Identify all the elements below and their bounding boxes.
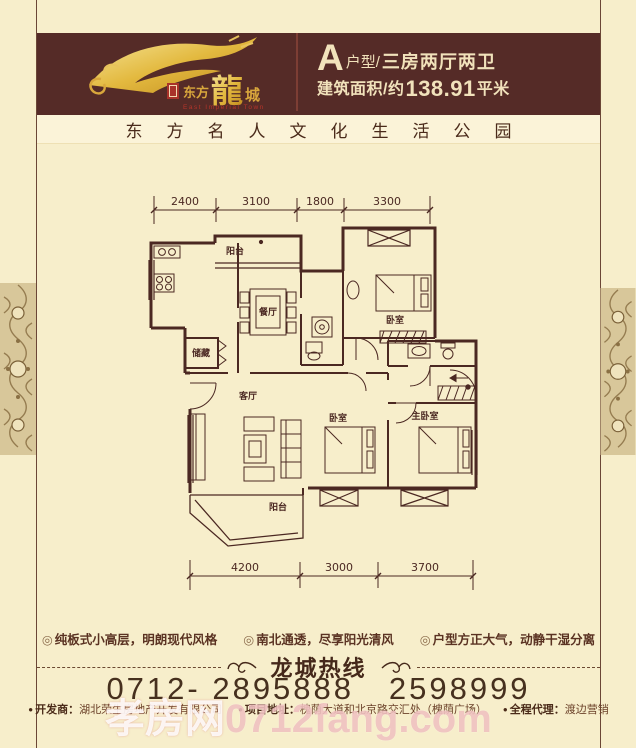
dot-bullet-icon: ● bbox=[238, 705, 243, 714]
dim-top-4: 3300 bbox=[373, 195, 401, 208]
footer-value: 渡边营销 bbox=[565, 701, 609, 717]
floor-plan: 2400 3100 1800 3300 4200 3000 3700 bbox=[138, 190, 522, 623]
hotline-dash-left bbox=[37, 667, 221, 668]
ornament-carving-right-icon bbox=[600, 288, 636, 455]
unit-letter: A bbox=[317, 42, 344, 73]
feature-list: ◎纯板式小高层，明朗现代风格 ◎南北通透，尽享阳光清风 ◎户型方正大气，动静干湿… bbox=[37, 629, 600, 648]
flyer-page: 东方 龍 城 East Imperial Town A 户型/ 三房两厅两卫 建… bbox=[0, 0, 636, 748]
room-label-living: 客厅 bbox=[238, 390, 257, 402]
footer-label: 项目地址： bbox=[245, 701, 300, 717]
room-labels: 阳台 餐厅 卧室 储藏 客厅 阳台 卧室 主卧室 bbox=[192, 245, 439, 513]
dragon-logo-icon: 东方 龍 城 East Imperial Town bbox=[79, 33, 319, 113]
unit-suffix: 户型/ bbox=[346, 54, 380, 71]
room-label-balcony-top: 阳台 bbox=[226, 245, 244, 257]
footer-value: 槐荫大道和北京路交汇处（槐荫广场） bbox=[300, 701, 487, 717]
dim-top-3: 1800 bbox=[306, 195, 334, 208]
dim-top-1: 2400 bbox=[171, 195, 199, 208]
dot-bullet-icon: ● bbox=[503, 705, 508, 714]
footer-info-bar: ●开发商：湖北荣生房地产开发有限公司 ●项目地址：槐荫大道和北京路交汇处（槐荫广… bbox=[37, 701, 600, 717]
footer-label: 全程代理： bbox=[510, 701, 565, 717]
room-label-dining: 餐厅 bbox=[258, 306, 277, 318]
dimension-labels: 2400 3100 1800 3300 4200 3000 3700 bbox=[171, 195, 439, 574]
footer-item-developer: ●开发商：湖北荣生房地产开发有限公司 bbox=[28, 701, 222, 717]
hotline-dash-right bbox=[417, 667, 601, 668]
unit-type-line: A 户型/ 三房两厅两卫 bbox=[317, 42, 510, 73]
furniture bbox=[154, 240, 471, 481]
room-label-bedroom-middle: 卧室 bbox=[329, 412, 347, 424]
area-value: 138.91 bbox=[405, 79, 475, 99]
room-label-balcony-bottom: 阳台 bbox=[269, 501, 287, 513]
header-divider bbox=[296, 33, 298, 111]
feature-text: 户型方正大气，动静干湿分离 bbox=[433, 633, 596, 647]
ring-bullet-icon: ◎ bbox=[420, 633, 431, 647]
tagline-text: 东方名人文化生活公园 bbox=[102, 117, 536, 142]
unit-area-line: 建筑面积/约 138.91 平米 bbox=[317, 79, 510, 99]
dim-bottom-1: 4200 bbox=[231, 561, 259, 574]
unit-info: A 户型/ 三房两厅两卫 建筑面积/约 138.91 平米 bbox=[317, 42, 510, 99]
tagline-band: 东方名人文化生活公园 bbox=[37, 115, 600, 144]
area-prefix: 建筑面积/约 bbox=[317, 81, 404, 99]
logo-en: East Imperial Town bbox=[183, 104, 265, 111]
feature-text: 南北通透，尽享阳光清风 bbox=[256, 633, 394, 647]
area-suffix: 平米 bbox=[477, 81, 510, 99]
logo-name-post: 城 bbox=[245, 86, 260, 104]
outer-walls bbox=[151, 228, 476, 493]
ring-bullet-icon: ◎ bbox=[42, 633, 53, 647]
logo-name-pre: 东方 bbox=[183, 85, 209, 100]
feature-text: 纯板式小高层，明朗现代风格 bbox=[55, 633, 218, 647]
footer-value: 湖北荣生房地产开发有限公司 bbox=[79, 701, 222, 717]
feature-item: ◎户型方正大气，动静干湿分离 bbox=[420, 629, 595, 648]
room-label-master-bedroom: 主卧室 bbox=[411, 410, 438, 422]
feature-item: ◎纯板式小高层，明朗现代风格 bbox=[42, 629, 217, 648]
ring-bullet-icon: ◎ bbox=[243, 633, 254, 647]
footer-item-agency: ●全程代理：渡边营销 bbox=[503, 701, 609, 717]
unit-rooms: 三房两厅两卫 bbox=[382, 52, 496, 73]
feature-item: ◎南北通透，尽享阳光清风 bbox=[243, 629, 393, 648]
dot-bullet-icon: ● bbox=[28, 705, 33, 714]
dim-top-2: 3100 bbox=[242, 195, 270, 208]
header-bar: 东方 龍 城 East Imperial Town A 户型/ 三房两厅两卫 建… bbox=[37, 33, 600, 115]
room-label-storage: 储藏 bbox=[192, 347, 210, 359]
dim-bottom-3: 3700 bbox=[411, 561, 439, 574]
room-label-bedroom-top-right: 卧室 bbox=[386, 314, 404, 326]
door-arcs bbox=[190, 338, 476, 423]
ornament-carving-left-icon bbox=[0, 283, 36, 455]
footer-item-address: ●项目地址：槐荫大道和北京路交汇处（槐荫广场） bbox=[238, 701, 487, 717]
dim-bottom-2: 3000 bbox=[325, 561, 353, 574]
interior-walls bbox=[185, 243, 476, 495]
dimension-lines bbox=[151, 196, 476, 590]
footer-label: 开发商： bbox=[35, 701, 79, 717]
